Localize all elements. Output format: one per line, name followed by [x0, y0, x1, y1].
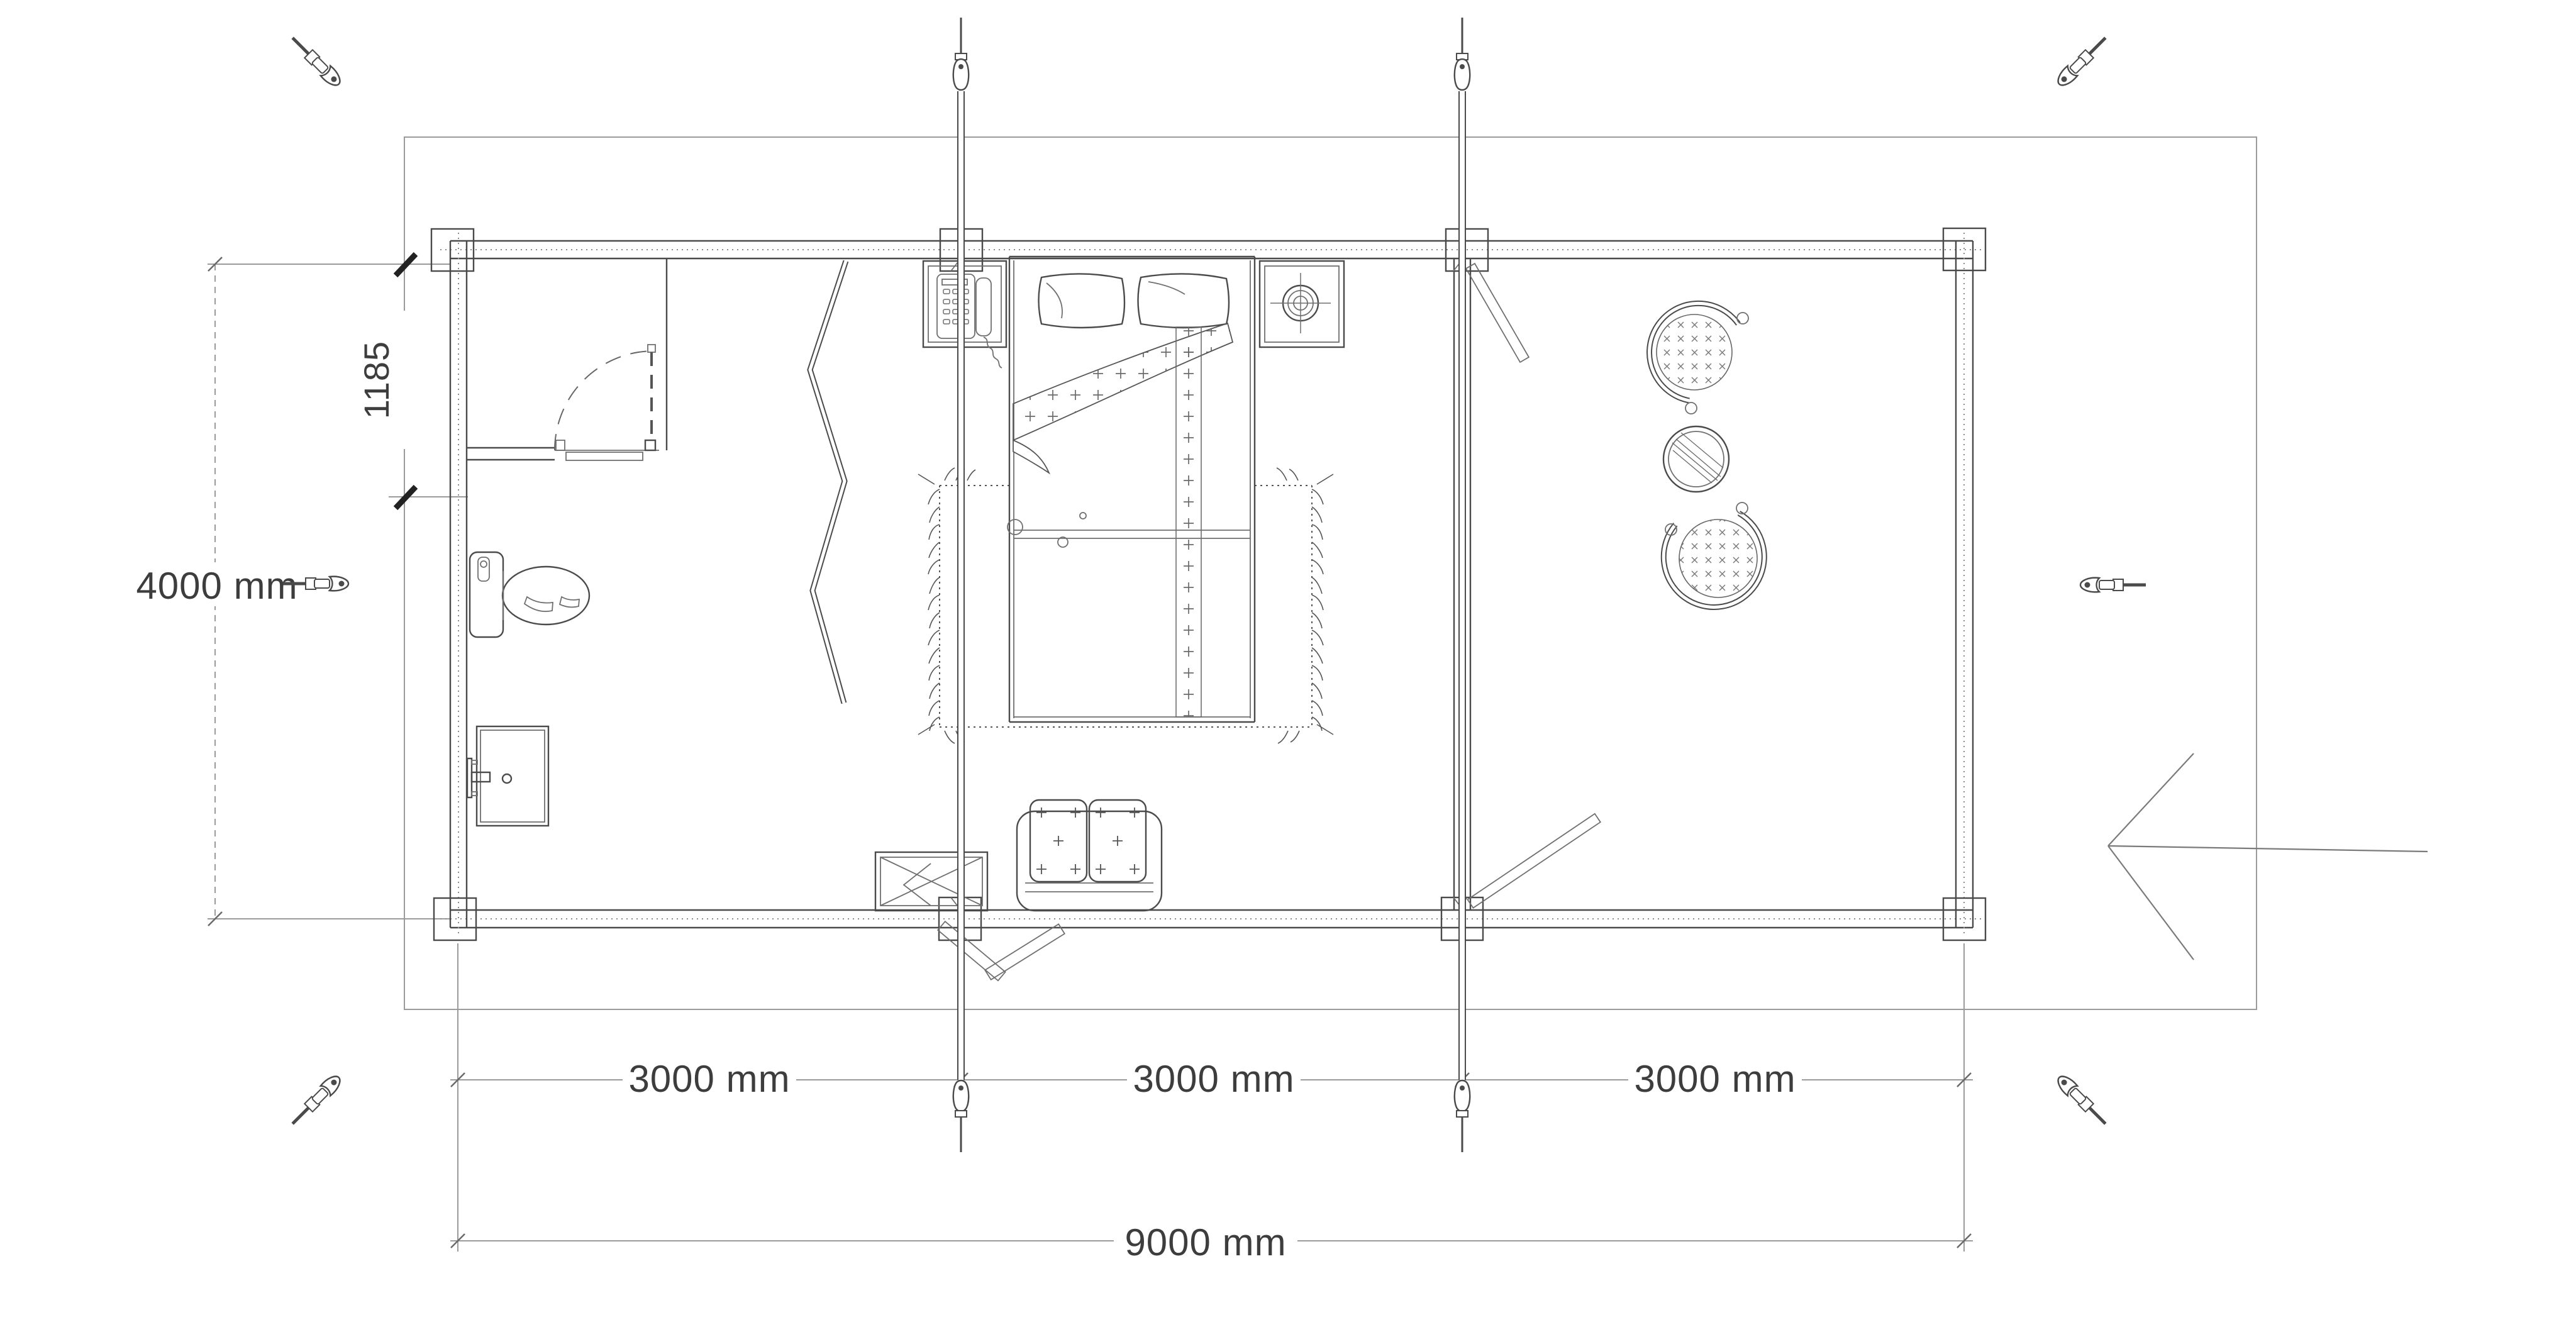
partition-door-leaf-top: [1466, 264, 1529, 362]
armchair-top: [1650, 303, 1748, 414]
telephone: [937, 274, 1002, 368]
screw-icon-bottom-left: [287, 1072, 344, 1129]
bay2-dimension-label: 3000 mm: [1133, 1058, 1294, 1100]
partition-door-leaves: [1466, 264, 1601, 908]
pillow-left: [1039, 274, 1125, 328]
interior-door: [555, 345, 659, 460]
turnbuckle-icon: [953, 1080, 969, 1111]
floor-plan-canvas: 4000 mm 1185 3000 mm 3000 mm 3000 mm 900…: [0, 0, 2576, 1327]
door-swing-arc: [555, 351, 654, 450]
rug-fringe-right: [1312, 489, 1323, 731]
screw-icon-bottom-right: [2054, 1072, 2111, 1129]
storm-brace-rod-right: [1455, 18, 1470, 1152]
coffee-table: [1663, 426, 1729, 492]
nightstand-right: [1260, 261, 1344, 347]
wall-right: [1956, 233, 1973, 937]
bay1-dimension-label: 3000 mm: [628, 1058, 790, 1100]
armchair-bottom: [1663, 502, 1764, 607]
site-boundary: [404, 137, 2257, 1009]
toilet: [470, 552, 589, 637]
wall-bottom: [440, 910, 1981, 928]
depth-dimension-label: 4000 mm: [136, 565, 297, 607]
blanket: [1008, 323, 1250, 717]
rug-fringe-left: [928, 489, 940, 731]
turnbuckle-icon: [1455, 1080, 1470, 1111]
table-lamp: [1270, 273, 1331, 333]
partition-door-leaf-bottom: [1468, 814, 1601, 908]
turnbuckle-icon: [953, 59, 969, 90]
rug-corner-tufts: [918, 468, 1333, 743]
bathroom-sink: [467, 726, 548, 826]
blanket-runner-strip: [1176, 327, 1201, 717]
wc-offset-label: 1185: [357, 341, 396, 419]
entrance-door-leaves: [938, 921, 1065, 980]
entrance-door-leaf-right: [985, 924, 1065, 979]
glass-reflection-lines: [1672, 433, 1723, 483]
pillow-right: [1138, 274, 1230, 328]
turnbuckle-icon: [1455, 59, 1470, 90]
storage-cabinet: [875, 852, 987, 911]
telephone-handset-icon: [976, 278, 991, 336]
total-width-label: 9000 mm: [1124, 1221, 1286, 1263]
screw-icon-right: [2080, 578, 2146, 592]
entrance-door-leaf-left: [938, 921, 1005, 980]
storm-brace-rod-left: [953, 18, 969, 1152]
folding-screen: [810, 261, 846, 703]
wall-left: [450, 233, 467, 937]
entrance-arrow-icon: [2108, 753, 2428, 960]
double-bed: [1008, 257, 1255, 722]
drain-icon: [502, 774, 511, 783]
sofa: [1017, 800, 1162, 911]
wc-room: [467, 258, 667, 460]
floor-plan-drawing: 4000 mm 1185 3000 mm 3000 mm 3000 mm 900…: [0, 0, 2576, 1327]
screw-icon-top-left: [287, 33, 344, 89]
rug: [918, 468, 1333, 743]
bay3-dimension-label: 3000 mm: [1634, 1058, 1796, 1100]
cushion-tuft-marks: [1036, 808, 1140, 874]
screw-icon-top-right: [2054, 33, 2111, 89]
